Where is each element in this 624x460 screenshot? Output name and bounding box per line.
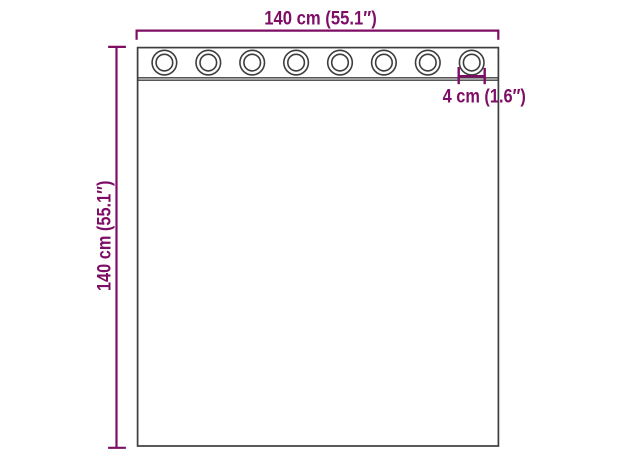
- svg-text:140 cm (55.1″): 140 cm (55.1″): [264, 9, 377, 30]
- svg-text:4 cm (1.6″): 4 cm (1.6″): [443, 86, 526, 107]
- svg-text:140 cm (55.1″): 140 cm (55.1″): [94, 181, 115, 291]
